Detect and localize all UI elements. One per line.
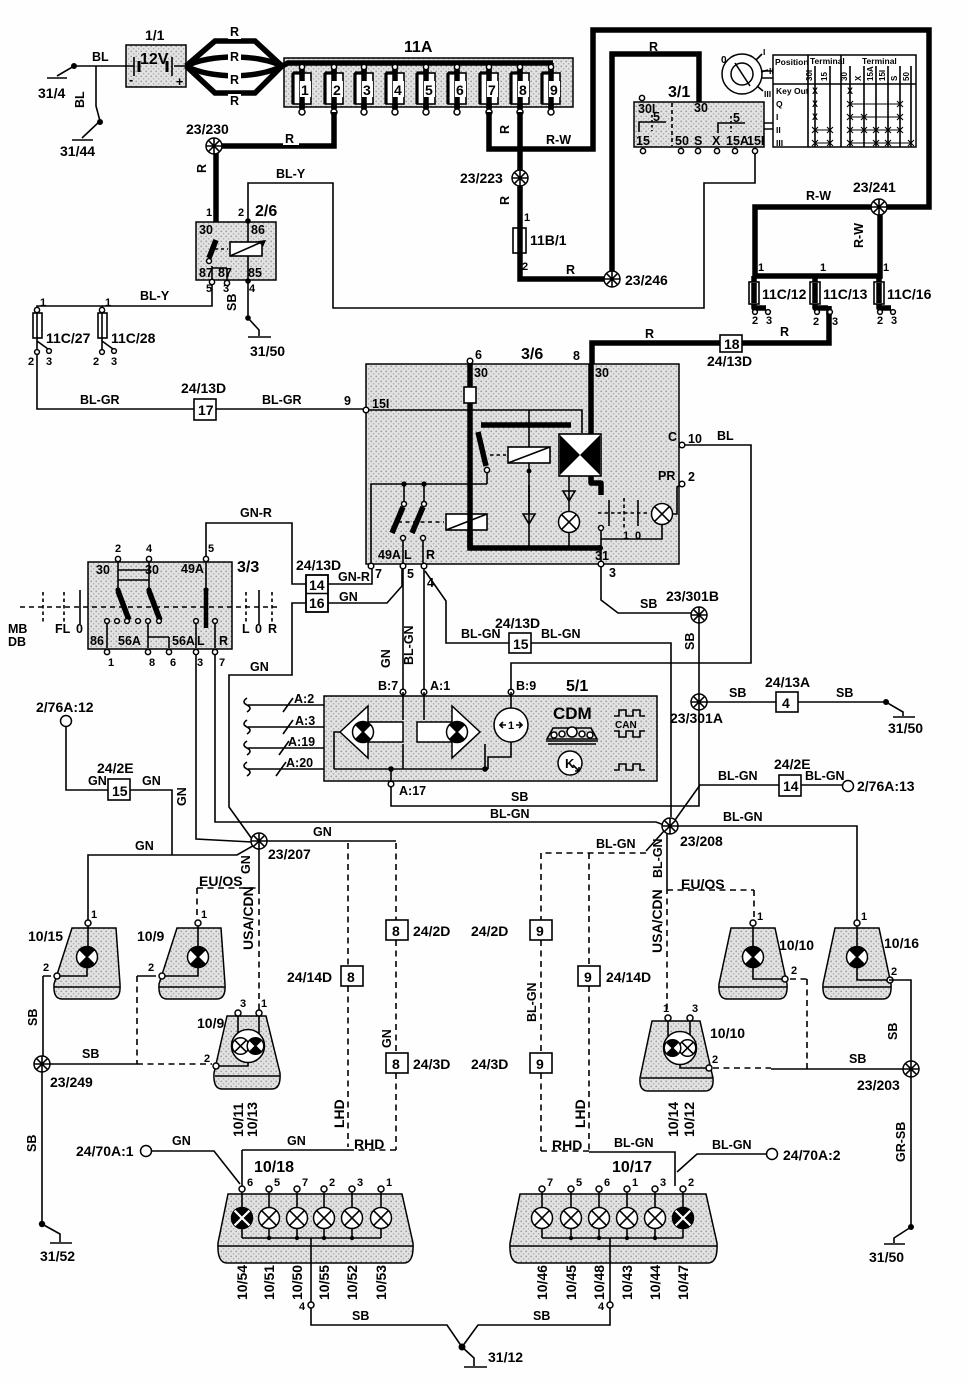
svg-text:24/2D: 24/2D: [413, 923, 450, 939]
svg-text:10/17: 10/17: [612, 1159, 652, 1176]
svg-text:7: 7: [488, 82, 496, 98]
svg-text:7: 7: [302, 1177, 308, 1189]
svg-text:24/3D: 24/3D: [413, 1056, 450, 1072]
svg-text:10/12: 10/12: [681, 1102, 697, 1137]
svg-text:6: 6: [475, 348, 482, 362]
svg-text:Position: Position: [775, 57, 809, 67]
svg-text:15A: 15A: [726, 134, 749, 148]
svg-text:8: 8: [573, 349, 580, 363]
svg-text:SB: SB: [729, 686, 746, 700]
svg-text:2: 2: [93, 356, 99, 368]
svg-text:4: 4: [394, 82, 402, 98]
svg-text:RHD: RHD: [552, 1137, 582, 1153]
svg-text:6: 6: [456, 82, 464, 98]
svg-text:+: +: [176, 75, 183, 89]
svg-text:GN: GN: [250, 660, 269, 674]
svg-text:2: 2: [891, 966, 897, 978]
svg-text:2: 2: [522, 261, 528, 273]
svg-text:A:1: A:1: [430, 679, 450, 693]
svg-text:3: 3: [832, 316, 838, 328]
svg-text:30: 30: [694, 101, 708, 115]
svg-text:15: 15: [513, 636, 529, 652]
svg-text:23/208: 23/208: [680, 833, 723, 849]
svg-text:11C/12: 11C/12: [762, 286, 807, 302]
svg-text:1: 1: [108, 657, 114, 669]
svg-text:BL-GN: BL-GN: [805, 769, 845, 783]
svg-text:24/13D: 24/13D: [495, 615, 540, 631]
svg-text:II: II: [776, 125, 781, 135]
svg-text:GN: GN: [339, 590, 358, 604]
svg-text:49A: 49A: [378, 548, 401, 562]
svg-text:SB: SB: [352, 1309, 369, 1323]
svg-text:LHD: LHD: [331, 1099, 347, 1128]
svg-text:LHD: LHD: [572, 1099, 588, 1128]
svg-text:X: X: [712, 134, 721, 148]
svg-text:10/43: 10/43: [619, 1265, 635, 1300]
svg-text:2: 2: [43, 962, 49, 974]
svg-text:31/50: 31/50: [888, 720, 923, 736]
svg-text:31/4: 31/4: [38, 85, 65, 101]
svg-text:K: K: [565, 756, 575, 771]
svg-text:2: 2: [329, 1177, 335, 1189]
svg-text:A:2: A:2: [294, 692, 314, 706]
svg-text:R-W: R-W: [852, 223, 866, 248]
svg-text:R: R: [780, 325, 789, 339]
svg-text:2: 2: [333, 82, 341, 98]
svg-text:GN: GN: [239, 855, 253, 874]
svg-text:EU/OS: EU/OS: [681, 876, 725, 892]
svg-text:I: I: [776, 112, 778, 122]
svg-text:7: 7: [375, 567, 382, 581]
svg-text:3: 3: [692, 1003, 698, 1015]
svg-text:9: 9: [344, 394, 351, 408]
svg-text:50: 50: [675, 134, 689, 148]
svg-text:11C/27: 11C/27: [46, 330, 91, 346]
svg-text:A:17: A:17: [399, 784, 426, 798]
svg-text:USA/CDN: USA/CDN: [649, 889, 665, 953]
svg-text:6: 6: [170, 657, 176, 669]
svg-text:GN: GN: [287, 1134, 306, 1148]
svg-text:30: 30: [595, 366, 609, 380]
svg-text:CDM: CDM: [553, 704, 592, 723]
svg-text:10: 10: [688, 432, 702, 446]
svg-text:30: 30: [96, 563, 110, 577]
svg-text:3/1: 3/1: [668, 84, 690, 101]
svg-text:A:20: A:20: [286, 756, 313, 770]
svg-text:1: 1: [757, 911, 763, 923]
svg-text:4: 4: [146, 543, 153, 555]
svg-text:10/47: 10/47: [675, 1265, 691, 1300]
svg-text:10/13: 10/13: [244, 1102, 260, 1137]
svg-text:BL-GN: BL-GN: [541, 627, 581, 641]
svg-text:2: 2: [688, 470, 695, 484]
svg-text:3: 3: [197, 657, 203, 669]
svg-text:1: 1: [508, 720, 514, 732]
svg-text:GN: GN: [88, 774, 107, 788]
svg-text:SB: SB: [836, 686, 853, 700]
svg-text:L: L: [404, 548, 412, 562]
svg-text:BL-GN: BL-GN: [718, 769, 758, 783]
svg-text:R-W: R-W: [546, 133, 571, 147]
svg-text:BL-GN: BL-GN: [461, 627, 501, 641]
svg-text:Key Out: Key Out: [776, 86, 809, 96]
svg-text:10/50: 10/50: [289, 1265, 305, 1300]
svg-text:10/44: 10/44: [647, 1265, 663, 1300]
svg-text:8: 8: [392, 1056, 400, 1072]
svg-text:3: 3: [111, 356, 117, 368]
svg-text:10/9: 10/9: [197, 1015, 224, 1031]
svg-text:24/3D: 24/3D: [471, 1056, 508, 1072]
svg-text:1: 1: [623, 530, 629, 542]
svg-text:9: 9: [584, 969, 592, 985]
svg-text:SB: SB: [683, 633, 697, 650]
svg-text:31/50: 31/50: [869, 1249, 904, 1265]
svg-text:15: 15: [820, 72, 829, 81]
svg-text:SB: SB: [533, 1309, 550, 1323]
svg-text:RHD: RHD: [354, 1136, 384, 1152]
svg-text:7: 7: [219, 657, 225, 669]
svg-text:1: 1: [105, 297, 111, 309]
svg-text:3: 3: [891, 315, 897, 327]
svg-text:0: 0: [721, 55, 727, 66]
svg-text:8: 8: [347, 969, 355, 985]
svg-text:23/249: 23/249: [50, 1074, 93, 1090]
svg-text:BL: BL: [717, 429, 734, 443]
svg-text:30: 30: [474, 366, 488, 380]
svg-text:24/13D: 24/13D: [181, 380, 226, 396]
svg-text:24/13D: 24/13D: [296, 557, 341, 573]
svg-text:1: 1: [861, 911, 867, 923]
svg-text:BL-GN: BL-GN: [614, 1136, 654, 1150]
svg-text:R: R: [230, 25, 239, 39]
svg-text:GN: GN: [175, 787, 189, 806]
svg-text:9: 9: [536, 1056, 544, 1072]
svg-text:R: R: [195, 164, 209, 173]
svg-text:3: 3: [766, 315, 772, 327]
svg-text:SB: SB: [82, 1047, 99, 1061]
svg-text:14: 14: [783, 778, 799, 794]
svg-text:7: 7: [547, 1177, 553, 1189]
svg-text:31/50: 31/50: [250, 343, 285, 359]
svg-text:2: 2: [877, 315, 883, 327]
svg-text:A:3: A:3: [295, 714, 315, 728]
svg-text:15: 15: [112, 783, 128, 799]
svg-text:31/52: 31/52: [40, 1248, 75, 1264]
svg-text:GN-R: GN-R: [338, 570, 370, 584]
svg-text:X: X: [812, 99, 818, 109]
svg-text:1: 1: [820, 262, 826, 274]
svg-text:18: 18: [724, 336, 740, 352]
svg-text:III: III: [764, 89, 771, 99]
svg-text:BL-GN: BL-GN: [723, 810, 763, 824]
svg-text:10/15: 10/15: [28, 928, 63, 944]
svg-text:MB: MB: [8, 622, 27, 636]
svg-text:R: R: [498, 125, 512, 134]
svg-text:5: 5: [274, 1177, 280, 1189]
svg-text:X: X: [812, 112, 818, 122]
svg-text:R: R: [566, 263, 575, 277]
svg-text:14: 14: [309, 577, 325, 593]
svg-text:0: 0: [76, 622, 83, 636]
svg-text:56A: 56A: [172, 634, 195, 648]
svg-text:4: 4: [598, 1301, 605, 1313]
svg-text:1: 1: [524, 212, 530, 224]
svg-text:2: 2: [28, 356, 34, 368]
svg-text:86: 86: [90, 634, 104, 648]
svg-text:30: 30: [840, 72, 849, 81]
svg-text:R: R: [645, 327, 654, 341]
svg-text:BL-GN: BL-GN: [402, 625, 416, 665]
svg-text:FL: FL: [55, 622, 71, 636]
svg-text:C: C: [668, 430, 677, 444]
svg-text:6: 6: [247, 1177, 253, 1189]
svg-text:BL-GN: BL-GN: [596, 837, 636, 851]
svg-text:DB: DB: [8, 635, 26, 649]
svg-text:10/9: 10/9: [137, 928, 164, 944]
svg-text:8: 8: [519, 82, 527, 98]
svg-text:6: 6: [604, 1177, 610, 1189]
svg-text:R: R: [230, 73, 239, 87]
svg-text:30I: 30I: [805, 70, 814, 81]
svg-text:R: R: [230, 50, 239, 64]
svg-text:10/52: 10/52: [344, 1265, 360, 1300]
svg-text:23/246: 23/246: [625, 272, 668, 288]
svg-text:2: 2: [813, 316, 819, 328]
svg-text:R-W: R-W: [806, 189, 831, 203]
svg-text:8: 8: [149, 657, 155, 669]
svg-text:-: -: [129, 73, 133, 87]
svg-text:23/301B: 23/301B: [666, 588, 719, 604]
svg-text:R: R: [268, 622, 277, 636]
svg-text:9: 9: [550, 82, 558, 98]
svg-text:17: 17: [198, 402, 214, 418]
svg-text:10/16: 10/16: [884, 935, 919, 951]
svg-text:S: S: [890, 75, 899, 81]
svg-text:1: 1: [386, 1177, 392, 1189]
svg-text:10/55: 10/55: [316, 1265, 332, 1300]
svg-text:R: R: [498, 196, 512, 205]
svg-text:I: I: [763, 47, 765, 57]
svg-text:L: L: [197, 634, 205, 648]
svg-text:A:19: A:19: [288, 735, 315, 749]
svg-text:85: 85: [248, 266, 262, 280]
svg-text:2: 2: [752, 315, 758, 327]
svg-text:SB: SB: [849, 1052, 866, 1066]
svg-text:X: X: [847, 86, 853, 96]
svg-text:3: 3: [240, 998, 246, 1010]
svg-text:BL-GN: BL-GN: [525, 982, 539, 1022]
svg-text:X: X: [854, 75, 863, 81]
svg-text:10/46: 10/46: [534, 1265, 550, 1300]
svg-text:10/53: 10/53: [373, 1265, 389, 1300]
svg-text:2: 2: [148, 962, 154, 974]
svg-text:X: X: [812, 86, 818, 96]
svg-text:GN: GN: [380, 1029, 394, 1048]
svg-text:31/12: 31/12: [488, 1349, 523, 1365]
svg-text:3: 3: [609, 566, 616, 580]
svg-text:15: 15: [636, 134, 650, 148]
svg-text:11C/16: 11C/16: [887, 286, 932, 302]
svg-text:5: 5: [576, 1177, 582, 1189]
svg-text:10/14: 10/14: [665, 1102, 681, 1137]
svg-text:1: 1: [206, 207, 212, 219]
svg-text:24/14D: 24/14D: [287, 969, 332, 985]
svg-text:15A: 15A: [866, 66, 875, 81]
svg-text:3: 3: [357, 1177, 363, 1189]
svg-text:3: 3: [46, 356, 52, 368]
svg-text:CAN: CAN: [615, 720, 637, 731]
svg-text:10/51: 10/51: [261, 1265, 277, 1300]
svg-text:EU/OS: EU/OS: [199, 873, 243, 889]
svg-text:GR-SB: GR-SB: [894, 1122, 908, 1162]
svg-text:Terminal: Terminal: [862, 56, 897, 66]
svg-text:2: 2: [791, 965, 797, 977]
svg-text:SB: SB: [26, 1009, 40, 1026]
svg-text:S: S: [694, 134, 702, 148]
svg-text:SB: SB: [25, 1135, 39, 1152]
svg-text:10/48: 10/48: [591, 1265, 607, 1300]
svg-text:BL: BL: [92, 50, 109, 64]
svg-text:10/54: 10/54: [234, 1265, 250, 1300]
svg-text:GN: GN: [379, 649, 393, 668]
svg-text:R: R: [285, 132, 294, 146]
svg-text:4: 4: [249, 283, 256, 295]
svg-text:2: 2: [238, 207, 244, 219]
svg-text:GN: GN: [172, 1134, 191, 1148]
svg-text:11A: 11A: [404, 39, 433, 56]
svg-text:USA/CDN: USA/CDN: [240, 886, 256, 950]
svg-text:23/223: 23/223: [460, 170, 503, 186]
svg-text:GN-R: GN-R: [240, 506, 272, 520]
svg-text:R: R: [426, 548, 435, 562]
svg-text:3/6: 3/6: [521, 346, 543, 363]
svg-text:15I: 15I: [372, 397, 389, 411]
svg-text:BL: BL: [73, 91, 87, 108]
svg-text:5: 5: [407, 567, 414, 581]
svg-text:15I: 15I: [747, 134, 764, 148]
svg-text:B:9: B:9: [516, 679, 536, 693]
svg-text:23/203: 23/203: [857, 1077, 900, 1093]
svg-text:GN: GN: [142, 774, 161, 788]
svg-text:1: 1: [758, 262, 764, 274]
svg-text:PR: PR: [658, 469, 675, 483]
svg-text:1: 1: [91, 909, 97, 921]
svg-text:2: 2: [712, 1054, 718, 1066]
svg-text:1: 1: [663, 1003, 669, 1015]
svg-text:BL-Y: BL-Y: [276, 167, 306, 181]
svg-text:B:7: B:7: [378, 679, 398, 693]
svg-text:R: R: [219, 634, 228, 648]
svg-text:SB: SB: [886, 1023, 900, 1040]
svg-text:87: 87: [199, 266, 213, 280]
svg-text:5: 5: [208, 543, 214, 555]
svg-text:3/3: 3/3: [237, 559, 259, 576]
svg-text:11B/1: 11B/1: [530, 232, 567, 248]
svg-text:10/18: 10/18: [254, 1159, 294, 1176]
svg-text:16: 16: [309, 595, 325, 611]
svg-text:10/10: 10/10: [710, 1025, 745, 1041]
svg-text:R: R: [230, 94, 239, 108]
svg-text:1: 1: [40, 297, 46, 309]
svg-text:56A: 56A: [118, 634, 141, 648]
svg-text:L: L: [242, 622, 250, 636]
svg-text:3: 3: [363, 82, 371, 98]
svg-text:2/76A:12: 2/76A:12: [36, 699, 94, 715]
svg-text:10/45: 10/45: [563, 1265, 579, 1300]
svg-text:9: 9: [536, 923, 544, 939]
svg-text:8: 8: [392, 923, 400, 939]
svg-text:23/230: 23/230: [186, 121, 229, 137]
svg-text:2/76A:13: 2/76A:13: [857, 778, 915, 794]
svg-text:24/14D: 24/14D: [606, 969, 651, 985]
svg-text:31/44: 31/44: [60, 143, 95, 159]
svg-text:GN: GN: [135, 839, 154, 853]
svg-text:BL-GN: BL-GN: [490, 807, 530, 821]
svg-text:2: 2: [115, 543, 121, 555]
svg-text:BL-GR: BL-GR: [262, 393, 302, 407]
svg-text:30: 30: [199, 223, 213, 237]
svg-text:GN: GN: [313, 825, 332, 839]
svg-text:SB: SB: [640, 597, 657, 611]
svg-text:5: 5: [425, 82, 433, 98]
svg-text:24/13A: 24/13A: [765, 674, 810, 690]
svg-text:4: 4: [782, 695, 790, 711]
svg-text:1: 1: [201, 909, 207, 921]
svg-text:0: 0: [255, 622, 262, 636]
svg-text:Q: Q: [776, 99, 783, 109]
svg-text:24/13D: 24/13D: [707, 353, 752, 369]
svg-text:49A: 49A: [181, 562, 204, 576]
svg-text:2: 2: [688, 1177, 694, 1189]
svg-text:23/241: 23/241: [853, 179, 896, 195]
svg-text:24/70A:2: 24/70A:2: [783, 1147, 841, 1163]
svg-text:SB: SB: [511, 790, 528, 804]
svg-text:1/1: 1/1: [145, 27, 165, 43]
svg-text:23/301A: 23/301A: [670, 710, 723, 726]
svg-text:5/1: 5/1: [566, 678, 588, 695]
svg-text:SB: SB: [225, 294, 239, 311]
svg-text:1: 1: [883, 262, 889, 274]
svg-text:1: 1: [632, 1177, 638, 1189]
svg-text:4: 4: [299, 1301, 306, 1313]
svg-text:10/10: 10/10: [779, 937, 814, 953]
svg-text:86: 86: [251, 223, 265, 237]
svg-text:BL-GN: BL-GN: [712, 1138, 752, 1152]
svg-text:3: 3: [660, 1177, 666, 1189]
svg-text:12V: 12V: [140, 51, 169, 68]
svg-text:24/2E: 24/2E: [97, 760, 134, 776]
svg-text:BL-Y: BL-Y: [140, 289, 170, 303]
svg-text:11C/28: 11C/28: [111, 330, 156, 346]
svg-text:2/6: 2/6: [255, 203, 277, 220]
svg-text:50: 50: [902, 72, 911, 81]
svg-text:1: 1: [301, 82, 309, 98]
svg-text:0: 0: [635, 530, 641, 542]
svg-text:BL-GR: BL-GR: [80, 393, 120, 407]
svg-text:23/207: 23/207: [268, 846, 311, 862]
svg-text:24/70A:1: 24/70A:1: [76, 1143, 134, 1159]
svg-text:Terminal: Terminal: [810, 56, 845, 66]
svg-text:24/2D: 24/2D: [471, 923, 508, 939]
svg-text:15I: 15I: [878, 70, 887, 81]
svg-text:1: 1: [261, 998, 267, 1010]
svg-text:III: III: [776, 138, 783, 148]
svg-text:BL-GN: BL-GN: [651, 838, 665, 878]
svg-text:11C/13: 11C/13: [823, 286, 868, 302]
